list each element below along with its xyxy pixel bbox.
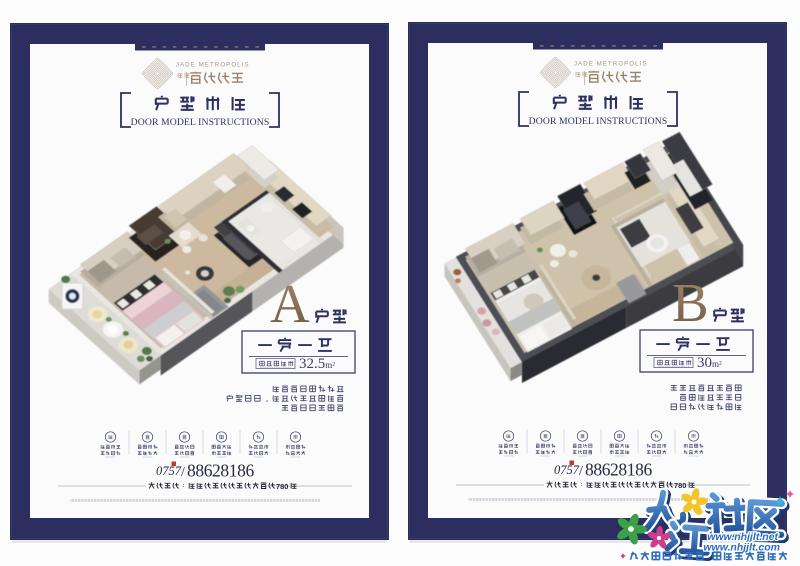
svg-text:/: / bbox=[181, 465, 185, 480]
svg-text:DOOR MODEL INSTRUCTIONS: DOOR MODEL INSTRUCTIONS bbox=[529, 116, 668, 127]
svg-text:DOOR MODEL INSTRUCTIONS: DOOR MODEL INSTRUCTIONS bbox=[131, 117, 270, 128]
svg-text:780: 780 bbox=[276, 482, 288, 491]
svg-text:B: B bbox=[672, 272, 709, 333]
svg-text:88628186: 88628186 bbox=[187, 461, 254, 481]
svg-text:A: A bbox=[270, 273, 310, 334]
svg-text:JADE METROPOLIS: JADE METROPOLIS bbox=[176, 63, 250, 69]
svg-text:/: / bbox=[579, 464, 583, 479]
svg-text:0757: 0757 bbox=[156, 464, 182, 478]
svg-text:JADE METROPOLIS: JADE METROPOLIS bbox=[574, 62, 648, 68]
svg-text:0757: 0757 bbox=[554, 463, 580, 477]
